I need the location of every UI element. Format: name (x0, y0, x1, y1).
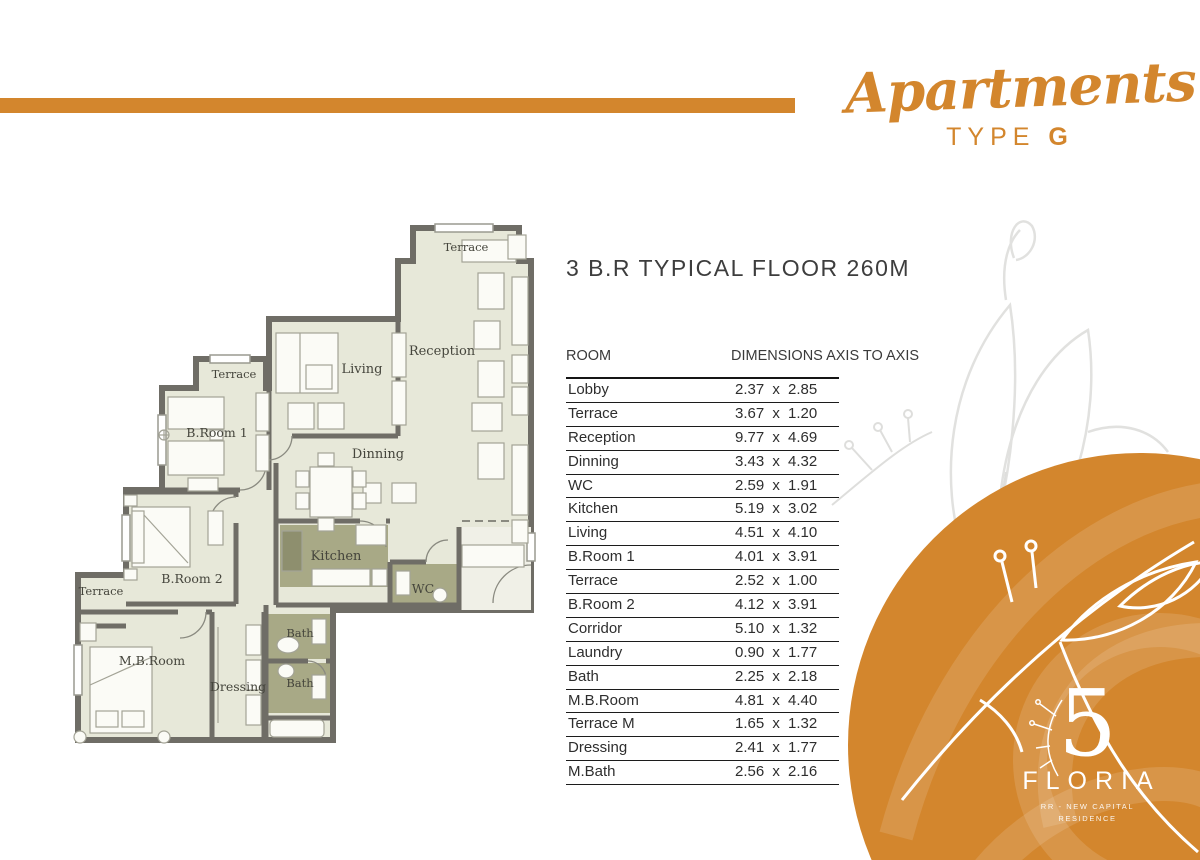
room-dimensions: 2.56 x 2.16 (735, 761, 817, 784)
table-row: Lobby 2.37 x 2.85 (566, 379, 839, 403)
column-dimensions: DIMENSIONS AXIS TO AXIS (731, 348, 919, 364)
table-row: B.Room 1 4.01 x 3.91 (566, 546, 839, 570)
room-dimensions: 2.41 x 1.77 (735, 737, 817, 760)
table-row: Kitchen 5.19 x 3.02 (566, 498, 839, 522)
room-dimensions: 3.67 x 1.20 (735, 403, 817, 426)
table-row: Terrace M 1.65 x 1.32 (566, 713, 839, 737)
top-orange-bar (0, 98, 795, 113)
room-name: Terrace M (568, 713, 635, 736)
room-name: Kitchen (568, 498, 618, 521)
room-dimensions: 4.12 x 3.91 (735, 594, 817, 617)
floor-plan: Terrace Reception Living Terrace B.Room … (60, 215, 550, 775)
brand-script-title: Apartments (844, 54, 1176, 120)
room-name: Laundry (568, 642, 622, 665)
room-name: Reception (568, 427, 636, 450)
room-name: B.Room 1 (568, 546, 635, 569)
room-name: Terrace (568, 570, 618, 593)
room-name: B.Room 2 (568, 594, 635, 617)
tagline-line1: RR - NEW CAPITAL (1005, 801, 1170, 813)
type-letter: G (1048, 123, 1073, 151)
label-mbroom: M.B.Room (119, 653, 185, 668)
label-broom2: B.Room 2 (161, 571, 222, 586)
logo-name: FLORIA (1005, 767, 1170, 796)
room-dimensions: 5.10 x 1.32 (735, 618, 817, 641)
table-row: Bath 2.25 x 2.18 (566, 666, 839, 690)
room-dimensions: 9.77 x 4.69 (735, 427, 817, 450)
label-reception: Reception (409, 344, 476, 359)
table-row: Reception 9.77 x 4.69 (566, 427, 839, 451)
label-dinning: Dinning (352, 447, 404, 462)
table-header: ROOM DIMENSIONS AXIS TO AXIS (566, 348, 906, 377)
tagline-line2: RESIDENCE (1005, 813, 1170, 825)
label-kitchen: Kitchen (311, 549, 362, 564)
column-room: ROOM (566, 348, 611, 364)
label-bath-lower: Bath (286, 676, 314, 690)
table-row: Dinning 3.43 x 4.32 (566, 451, 839, 475)
label-terrace-m: Terrace (79, 584, 124, 598)
label-terrace-top: Terrace (444, 240, 489, 254)
label-wc: WC (412, 581, 434, 596)
table-row: Living 4.51 x 4.10 (566, 522, 839, 546)
logo-tagline: RR - NEW CAPITAL RESIDENCE (1005, 801, 1170, 824)
room-name: M.Bath (568, 761, 616, 784)
room-name: Dressing (568, 737, 627, 760)
table-row: Corridor 5.10 x 1.32 (566, 618, 839, 642)
room-name: Dinning (568, 451, 619, 474)
brand-block: Apartments TYPE G (845, 60, 1175, 152)
table-row: Laundry 0.90 x 1.77 (566, 642, 839, 666)
label-dressing: Dressing (210, 679, 266, 694)
room-dimensions: 2.25 x 2.18 (735, 666, 817, 689)
room-dimensions: 0.90 x 1.77 (735, 642, 817, 665)
room-dimensions: 5.19 x 3.02 (735, 498, 817, 521)
table-row: WC 2.59 x 1.91 (566, 475, 839, 499)
label-terrace-br1: Terrace (212, 367, 257, 381)
room-dimensions: 4.51 x 4.10 (735, 522, 817, 545)
table-body: Lobby 2.37 x 2.85 Terrace 3.67 x 1.20 Re… (566, 379, 906, 785)
table-row: M.B.Room 4.81 x 4.40 (566, 690, 839, 714)
room-dimensions: 2.37 x 2.85 (735, 379, 817, 402)
room-name: M.B.Room (568, 690, 639, 713)
table-row: Terrace 2.52 x 1.00 (566, 570, 839, 594)
type-word: TYPE (946, 123, 1035, 151)
room-dimensions: 1.65 x 1.32 (735, 713, 817, 736)
logo-numeral-5: 5 (1005, 686, 1170, 761)
table-row: M.Bath 2.56 x 2.16 (566, 761, 839, 785)
floria-logo: 5 FLORIA RR - NEW CAPITAL RESIDENCE (1005, 686, 1170, 825)
room-dimensions: 2.52 x 1.00 (735, 570, 817, 593)
table-row: Terrace 3.67 x 1.20 (566, 403, 839, 427)
page-title: 3 B.R TYPICAL FLOOR 260M (566, 255, 986, 282)
room-dimensions: 4.01 x 3.91 (735, 546, 817, 569)
label-bath-upper: Bath (286, 626, 314, 640)
room-dimensions: 3.43 x 4.32 (735, 451, 817, 474)
dimensions-table: ROOM DIMENSIONS AXIS TO AXIS Lobby 2.37 … (566, 348, 906, 785)
brand-type-label: TYPE G (845, 123, 1175, 152)
room-dimensions: 2.59 x 1.91 (735, 475, 817, 498)
room-name: Lobby (568, 379, 609, 402)
label-broom1: B.Room 1 (186, 425, 247, 440)
table-row: B.Room 2 4.12 x 3.91 (566, 594, 839, 618)
room-dimensions: 4.81 x 4.40 (735, 690, 817, 713)
room-name: Bath (568, 666, 599, 689)
room-name: Corridor (568, 618, 622, 641)
table-row: Dressing 2.41 x 1.77 (566, 737, 839, 761)
room-name: WC (568, 475, 593, 498)
room-name: Terrace (568, 403, 618, 426)
room-name: Living (568, 522, 607, 545)
label-living: Living (342, 362, 383, 377)
